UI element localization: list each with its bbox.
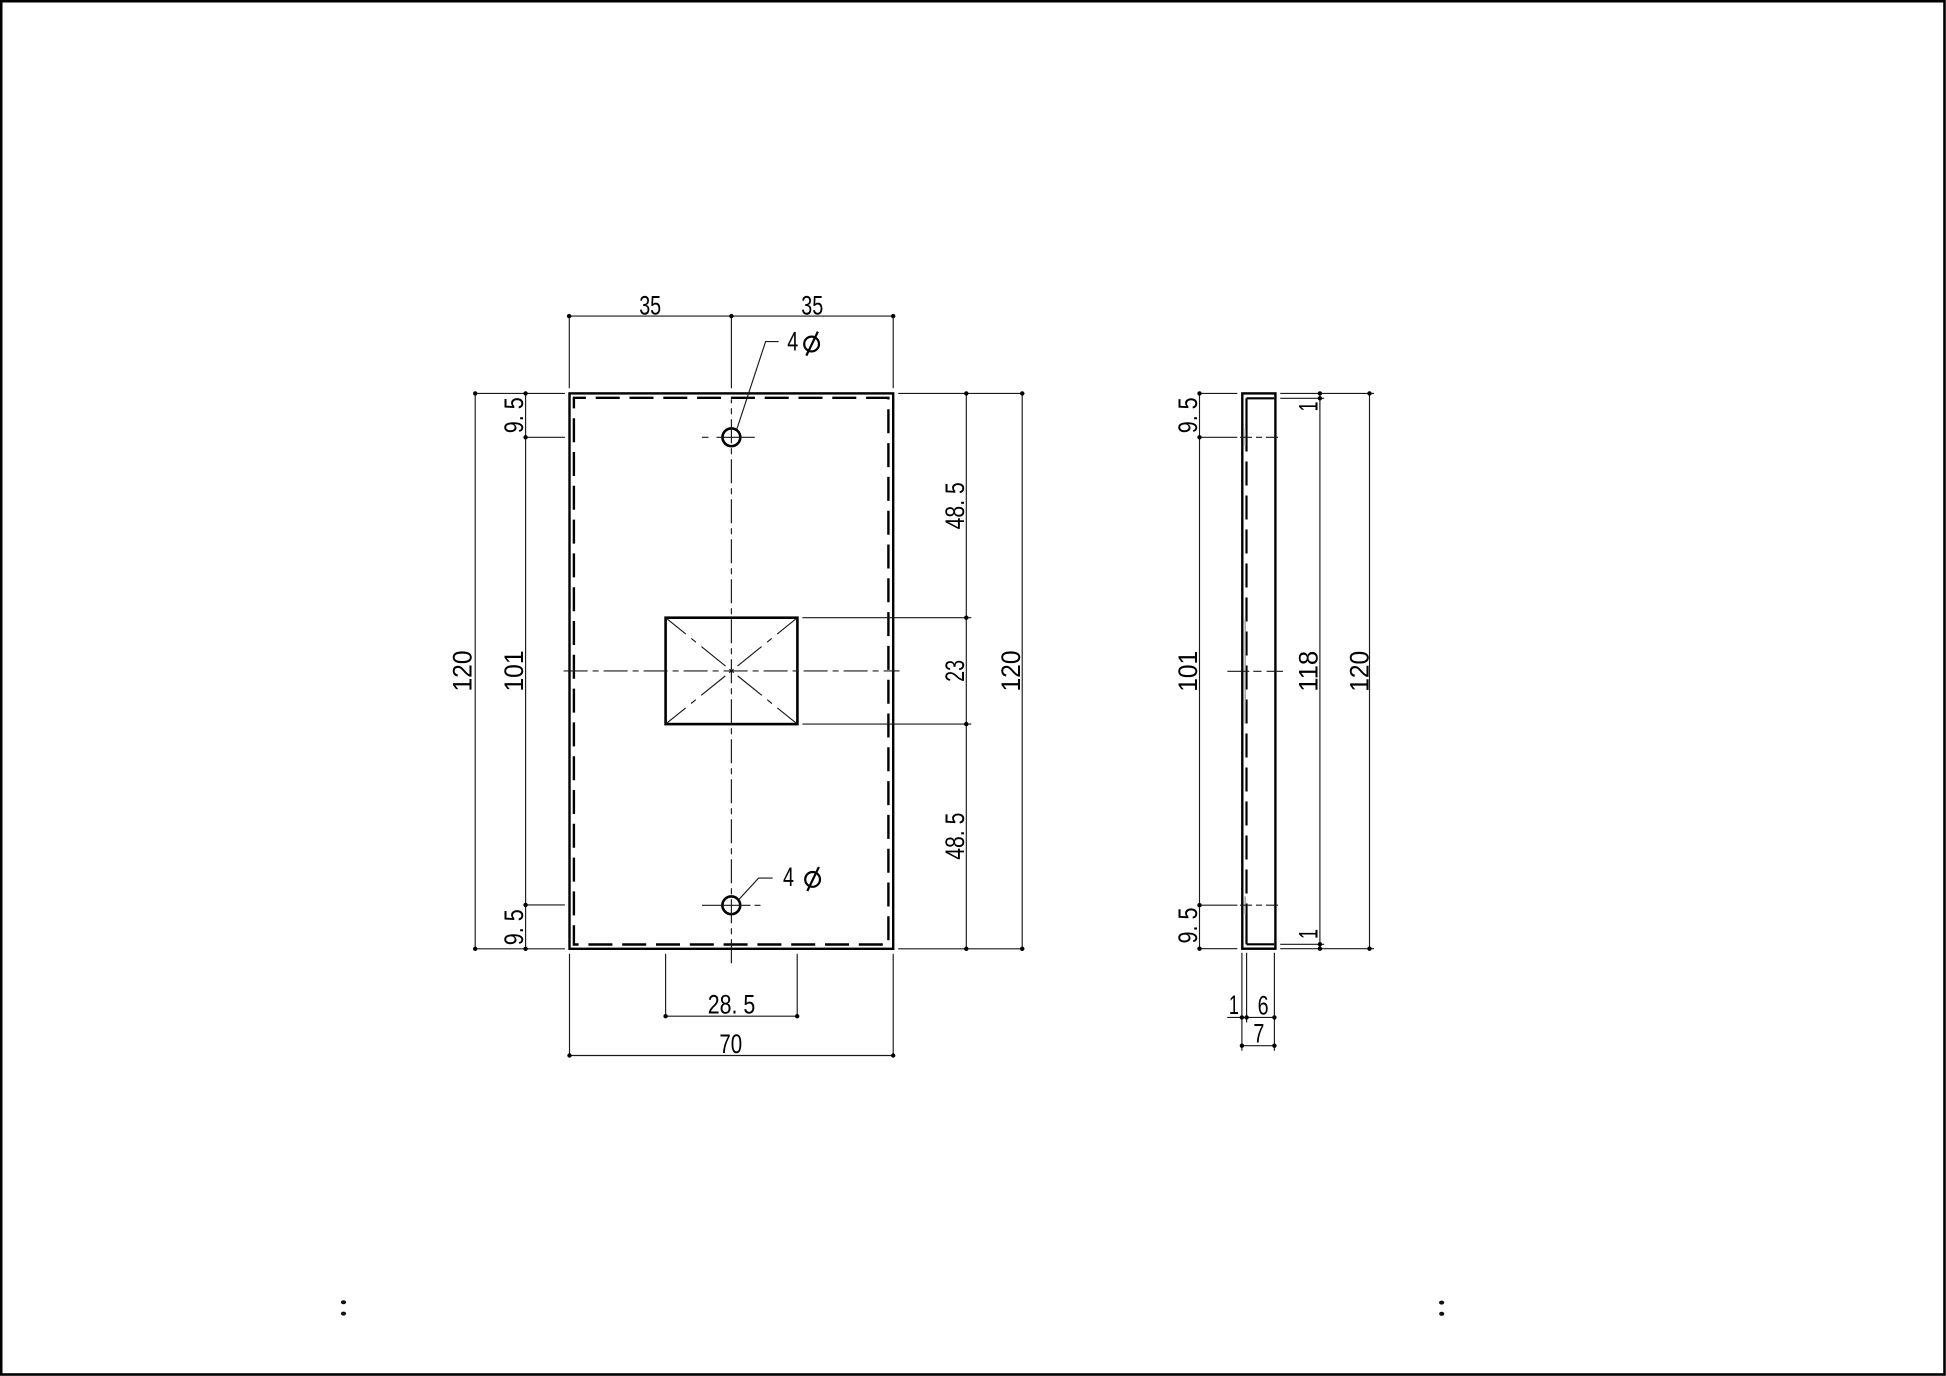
svg-text:4: 4 [787, 327, 798, 357]
svg-text:9. 5: 9. 5 [1173, 908, 1203, 944]
svg-text:101: 101 [499, 651, 529, 692]
svg-text:9. 5: 9. 5 [499, 397, 529, 433]
svg-text:35: 35 [639, 290, 661, 320]
svg-text:48. 5: 48. 5 [940, 482, 970, 529]
svg-text:120: 120 [996, 651, 1026, 692]
svg-text:9. 5: 9. 5 [1173, 397, 1203, 433]
svg-text:28. 5: 28. 5 [708, 990, 756, 1020]
svg-text:120: 120 [1344, 651, 1374, 692]
svg-text:9. 5: 9. 5 [499, 909, 529, 945]
svg-text:1: 1 [1294, 929, 1324, 939]
svg-text:4: 4 [783, 862, 794, 892]
svg-text:101: 101 [1173, 651, 1203, 692]
svg-text:48. 5: 48. 5 [940, 813, 970, 860]
svg-text:7: 7 [1253, 1018, 1264, 1048]
svg-text:35: 35 [801, 290, 823, 320]
svg-text:120: 120 [447, 651, 477, 692]
svg-text:6: 6 [1258, 991, 1269, 1021]
svg-text:1: 1 [1229, 990, 1239, 1020]
svg-text:118: 118 [1294, 651, 1324, 692]
svg-text:1: 1 [1294, 402, 1324, 412]
svg-text:23: 23 [940, 660, 970, 682]
svg-text:70: 70 [719, 1029, 742, 1059]
